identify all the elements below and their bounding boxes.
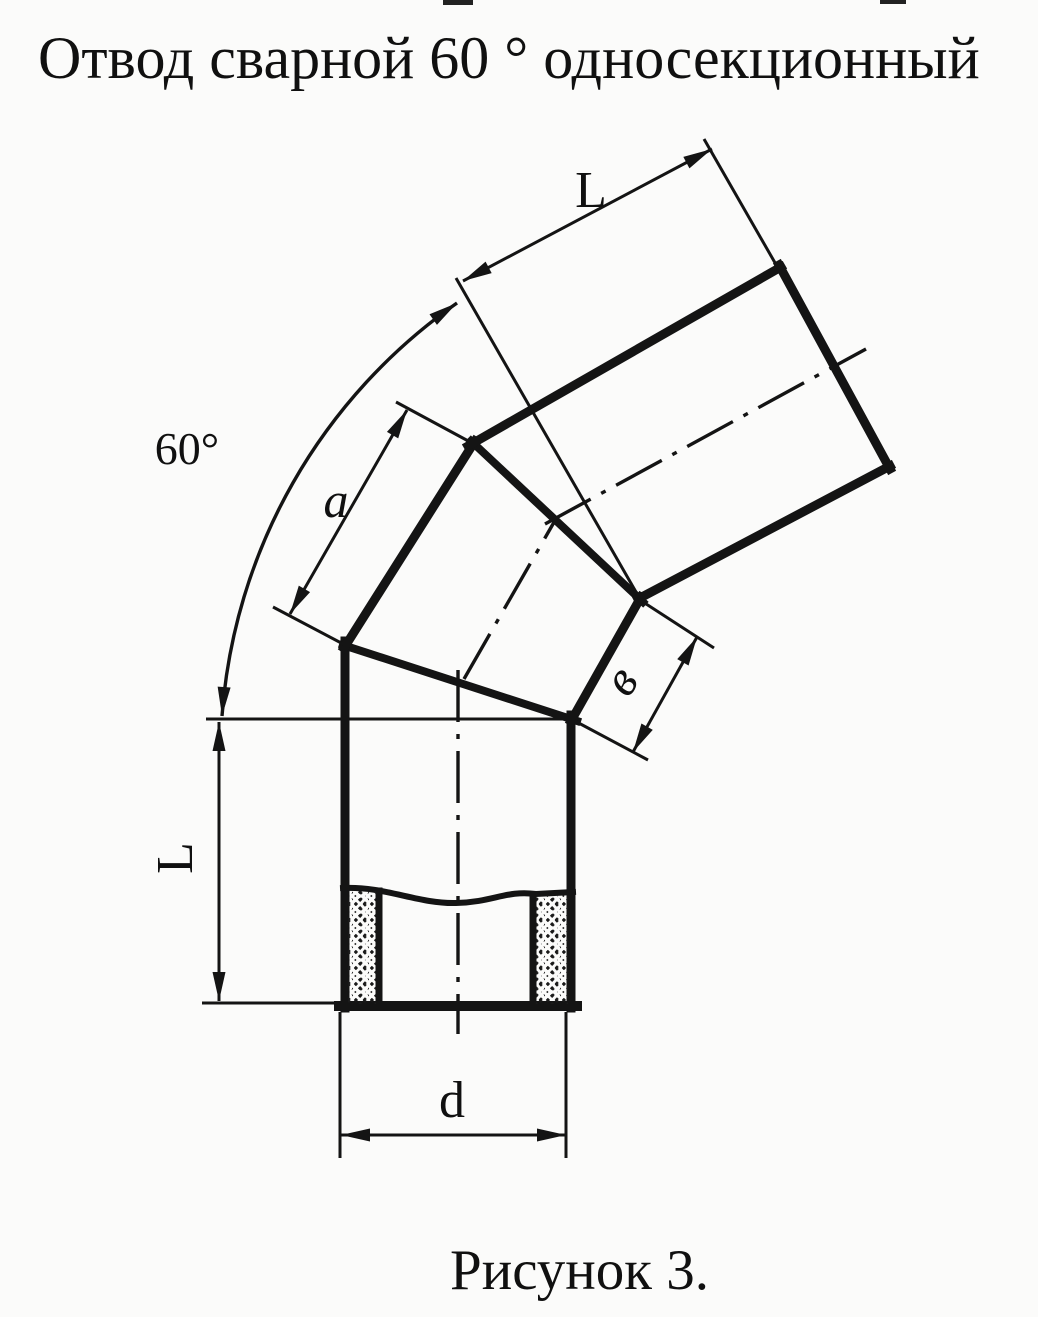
label-section-inner-width: в (591, 655, 649, 705)
label-angle: 60° (155, 423, 219, 474)
top-pipe-inner-wall (638, 466, 890, 599)
hatch-right-wall-section (536, 894, 568, 1004)
ext-line-v-lower (573, 720, 648, 760)
label-section-outer-width: a (324, 472, 349, 528)
ext-line-a-lower (273, 607, 345, 645)
label-top-arm-length: L (575, 162, 607, 219)
ext-line-v-upper (640, 600, 714, 648)
drawing-title: Отвод сварной 60 ° односекционный (38, 25, 980, 91)
label-bottom-arm-length: L (147, 842, 204, 874)
ext-line-top-L-far (704, 139, 778, 268)
scan-artifacts (443, 0, 906, 5)
figure-caption: Рисунок 3. (450, 1239, 709, 1302)
label-diameter: d (439, 1072, 465, 1129)
elbow-outline (339, 265, 890, 1008)
technical-drawing-elbow-60deg: Отвод сварной 60 ° односекционный L 60° … (0, 0, 1038, 1317)
top-pipe-outer-wall (468, 267, 781, 446)
middle-section-outer-wall (344, 441, 475, 648)
ext-line-a-upper (396, 402, 472, 443)
lower-weld-seam (343, 645, 577, 721)
upper-weld-seam (471, 441, 643, 602)
scanned-drawing-page: Отвод сварной 60 ° односекционный L 60° … (0, 0, 1038, 1317)
centerlines (458, 349, 866, 1034)
hatch-left-wall-section (348, 891, 376, 1004)
middle-section-centerline (464, 517, 557, 679)
scan-artifact (443, 0, 473, 5)
scan-artifact (880, 0, 906, 4)
